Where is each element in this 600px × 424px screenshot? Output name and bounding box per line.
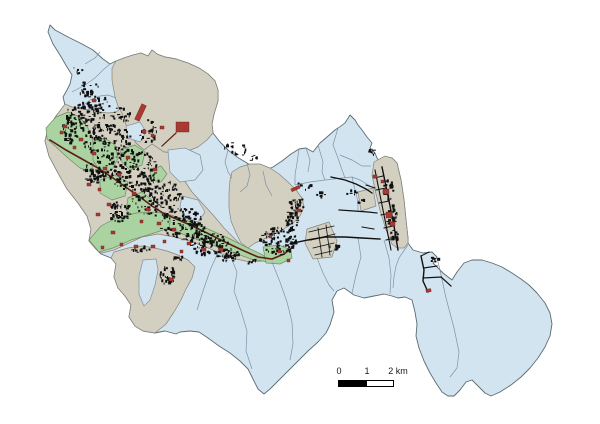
red-building <box>79 138 83 141</box>
red-building <box>87 183 91 186</box>
red-building <box>287 259 290 262</box>
red-building <box>120 243 123 246</box>
red-building <box>383 189 389 194</box>
red-building <box>117 173 121 176</box>
red-building <box>157 222 161 225</box>
red-building <box>142 130 146 133</box>
red-building <box>381 180 384 183</box>
red-building <box>92 99 96 102</box>
red-building <box>151 134 154 137</box>
red-building <box>373 175 377 178</box>
red-building <box>146 208 150 211</box>
red-building <box>103 167 107 170</box>
red-building <box>98 188 101 191</box>
red-building <box>180 250 183 253</box>
red-building <box>132 192 136 195</box>
red-building <box>153 168 157 171</box>
red-building <box>151 245 155 248</box>
red-building <box>96 213 100 216</box>
red-building <box>219 248 223 251</box>
red-building <box>390 222 395 226</box>
red-building <box>202 248 206 251</box>
red-building <box>92 152 96 155</box>
red-building <box>73 146 76 149</box>
red-building <box>107 203 111 206</box>
red-building <box>426 289 431 293</box>
red-building <box>297 209 301 212</box>
red-building <box>101 246 104 249</box>
red-building <box>278 250 281 253</box>
red-building <box>163 240 166 243</box>
districts-map <box>0 0 600 424</box>
scale-label-2km: 2 km <box>388 366 408 376</box>
scale-bar-white-segment <box>366 380 394 387</box>
red-building <box>269 235 272 238</box>
scale-label-1: 1 <box>364 366 369 376</box>
red-building <box>187 242 191 245</box>
scale-label-0: 0 <box>336 366 341 376</box>
red-building <box>140 220 143 223</box>
red-building <box>176 122 189 132</box>
red-building <box>60 131 63 134</box>
red-building <box>63 125 67 128</box>
red-building <box>126 156 130 159</box>
red-building <box>169 278 173 281</box>
scale-bar-black-segment <box>338 380 366 387</box>
red-building <box>111 231 115 234</box>
map-page: 0 1 2 km <box>0 0 600 424</box>
red-building <box>172 228 176 231</box>
red-building <box>160 126 164 129</box>
red-building <box>386 212 392 218</box>
red-building <box>134 245 138 248</box>
